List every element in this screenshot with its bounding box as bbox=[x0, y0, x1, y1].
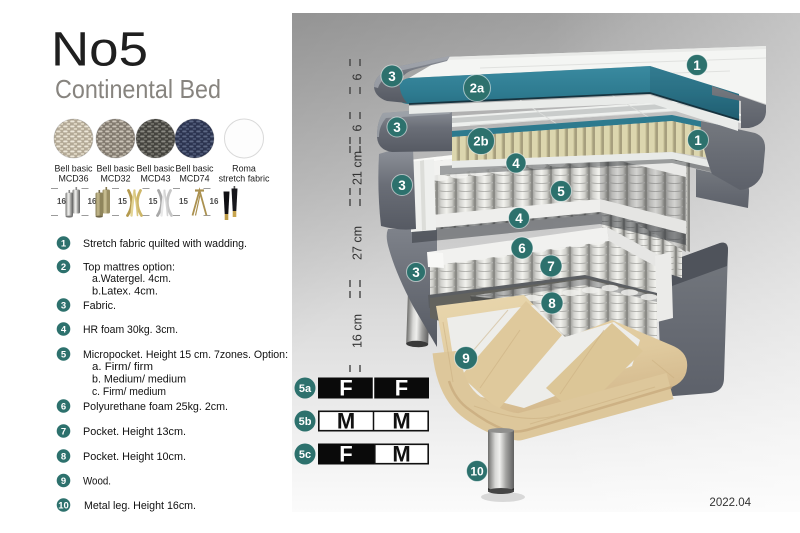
svg-text:8: 8 bbox=[548, 296, 556, 311]
svg-text:Pocket. Height 10cm.: Pocket. Height 10cm. bbox=[83, 451, 186, 463]
svg-text:Metal leg. Height 16cm.: Metal leg. Height 16cm. bbox=[84, 500, 196, 512]
svg-text:5: 5 bbox=[61, 349, 67, 360]
svg-text:1: 1 bbox=[61, 238, 67, 249]
svg-text:b. Medium/ medium: b. Medium/ medium bbox=[92, 374, 186, 386]
svg-text:2022.04: 2022.04 bbox=[709, 497, 751, 509]
svg-text:4: 4 bbox=[61, 324, 67, 335]
svg-text:stretch fabric: stretch fabric bbox=[219, 174, 270, 184]
svg-text:Pocket. Height 13cm.: Pocket. Height 13cm. bbox=[83, 426, 186, 438]
svg-text:16: 16 bbox=[57, 197, 66, 206]
svg-text:6: 6 bbox=[351, 73, 365, 80]
svg-text:Top mattres option:: Top mattres option: bbox=[83, 262, 175, 274]
svg-text:HR foam 30kg. 3cm.: HR foam 30kg. 3cm. bbox=[83, 324, 178, 336]
svg-text:10: 10 bbox=[58, 500, 69, 511]
svg-text:4: 4 bbox=[512, 156, 520, 171]
svg-text:2a: 2a bbox=[470, 81, 485, 96]
svg-text:2: 2 bbox=[61, 262, 66, 273]
svg-text:6: 6 bbox=[61, 401, 66, 412]
svg-text:c. Firm/ medium: c. Firm/ medium bbox=[92, 386, 166, 398]
svg-text:3: 3 bbox=[393, 120, 401, 135]
svg-text:1: 1 bbox=[693, 58, 701, 73]
svg-text:27 cm: 27 cm bbox=[351, 226, 365, 260]
svg-text:9: 9 bbox=[462, 351, 470, 366]
svg-text:M: M bbox=[392, 442, 410, 467]
svg-text:5: 5 bbox=[557, 184, 565, 199]
svg-text:21 cm: 21 cm bbox=[351, 151, 365, 185]
svg-text:Bell basic: Bell basic bbox=[176, 164, 215, 174]
svg-text:Roma: Roma bbox=[232, 164, 256, 174]
svg-text:15: 15 bbox=[149, 197, 158, 206]
svg-text:1: 1 bbox=[694, 133, 702, 148]
svg-text:5b: 5b bbox=[299, 416, 312, 428]
svg-text:8: 8 bbox=[61, 451, 66, 462]
svg-text:MCD74: MCD74 bbox=[179, 174, 209, 184]
svg-text:5a: 5a bbox=[299, 383, 312, 395]
svg-text:a. Firm/ firm: a. Firm/ firm bbox=[92, 361, 153, 373]
svg-text:Bell basic: Bell basic bbox=[137, 164, 176, 174]
svg-text:Stretch fabric quilted with wa: Stretch fabric quilted with wadding. bbox=[83, 238, 247, 250]
svg-text:F: F bbox=[395, 376, 408, 401]
svg-text:Bell basic: Bell basic bbox=[55, 164, 94, 174]
svg-text:15: 15 bbox=[179, 197, 188, 206]
svg-text:M: M bbox=[337, 409, 355, 434]
svg-text:a.Watergel. 4cm.: a.Watergel. 4cm. bbox=[92, 273, 171, 285]
svg-text:MCD36: MCD36 bbox=[58, 174, 88, 184]
svg-text:F: F bbox=[339, 376, 352, 401]
svg-text:No5: No5 bbox=[51, 23, 148, 77]
svg-text:Continental Bed: Continental Bed bbox=[55, 74, 221, 104]
svg-text:16: 16 bbox=[210, 197, 219, 206]
svg-text:3: 3 bbox=[388, 69, 396, 84]
svg-text:3: 3 bbox=[61, 300, 66, 311]
svg-text:2b: 2b bbox=[473, 134, 488, 149]
svg-text:F: F bbox=[339, 442, 352, 467]
svg-text:Polyurethane foam 25kg. 2cm.: Polyurethane foam 25kg. 2cm. bbox=[83, 401, 228, 413]
svg-text:7: 7 bbox=[547, 259, 555, 274]
svg-text:MCD32: MCD32 bbox=[100, 174, 130, 184]
svg-text:3: 3 bbox=[412, 265, 420, 280]
svg-text:4: 4 bbox=[515, 211, 523, 226]
svg-text:5c: 5c bbox=[299, 449, 311, 461]
svg-text:10: 10 bbox=[470, 464, 484, 478]
svg-text:6: 6 bbox=[518, 241, 526, 256]
svg-text:Bell basic: Bell basic bbox=[97, 164, 136, 174]
svg-text:Wood.: Wood. bbox=[83, 476, 111, 488]
svg-text:MCD43: MCD43 bbox=[140, 174, 170, 184]
svg-text:7: 7 bbox=[61, 426, 66, 437]
svg-text:9: 9 bbox=[61, 476, 66, 487]
svg-text:M: M bbox=[392, 409, 410, 434]
svg-text:b.Latex. 4cm.: b.Latex. 4cm. bbox=[92, 286, 158, 298]
svg-text:Micropocket. Height 15 cm. 7zo: Micropocket. Height 15 cm. 7zones. Optio… bbox=[83, 349, 288, 361]
svg-text:Fabric.: Fabric. bbox=[83, 300, 116, 312]
svg-text:16 cm: 16 cm bbox=[351, 314, 365, 348]
svg-text:3: 3 bbox=[398, 178, 406, 193]
svg-text:15: 15 bbox=[118, 197, 127, 206]
svg-text:6: 6 bbox=[351, 124, 365, 131]
